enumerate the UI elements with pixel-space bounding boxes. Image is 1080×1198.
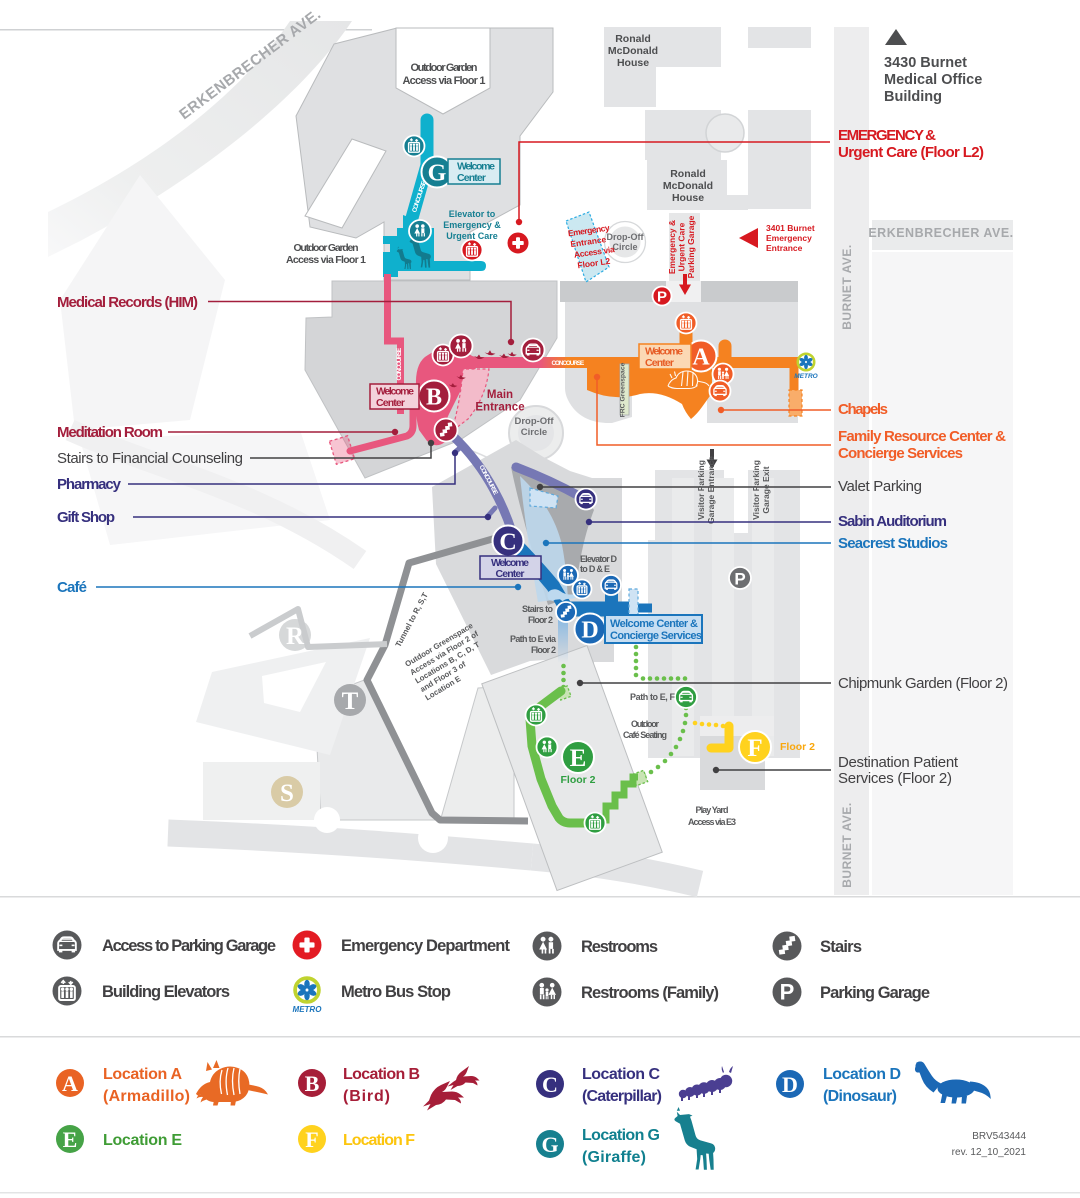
svg-text:Urgent Care (Floor L2): Urgent Care (Floor L2) [838,144,984,161]
svg-text:Stairs to Financial Counseling: Stairs to Financial Counseling [57,450,243,467]
svg-text:Emergency &: Emergency & [443,220,501,230]
svg-text:Café Seating: Café Seating [623,730,667,740]
svg-text:McDonald: McDonald [663,180,713,192]
svg-text:D: D [782,1072,798,1097]
svg-text:Location G: Location G [582,1127,660,1144]
svg-text:Restrooms: Restrooms [581,938,658,956]
svg-text:Destination Patient: Destination Patient [838,754,959,771]
svg-text:Location F: Location F [343,1132,415,1149]
svg-text:BRV543444: BRV543444 [972,1131,1026,1142]
svg-text:Concierge Services: Concierge Services [838,445,963,462]
svg-text:Location C: Location C [582,1066,660,1083]
svg-text:Circle: Circle [612,242,637,252]
svg-text:Floor 2: Floor 2 [780,741,815,753]
svg-text:Restrooms (Family): Restrooms (Family) [581,984,719,1002]
svg-text:Entrance: Entrance [766,243,803,253]
svg-text:Stairs to: Stairs to [522,604,554,614]
svg-text:BURNET AVE.: BURNET AVE. [840,802,854,888]
svg-text:Metro Bus Stop: Metro Bus Stop [341,983,451,1001]
svg-text:BURNET AVE.: BURNET AVE. [840,244,854,330]
svg-text:Access via E3: Access via E3 [688,817,736,827]
svg-text:Emergency: Emergency [766,233,812,243]
svg-text:Center: Center [457,172,486,184]
svg-text:Ronald: Ronald [615,33,651,45]
svg-text:Family Resource Center &: Family Resource Center & [838,428,1006,445]
svg-text:Visitor Parking: Visitor Parking [751,460,761,520]
svg-text:CONCOURSE: CONCOURSE [396,348,403,381]
svg-text:E: E [570,745,587,772]
svg-text:Building Elevators: Building Elevators [102,983,230,1001]
svg-text:D: D [581,618,598,644]
svg-text:Location B: Location B [343,1066,420,1083]
svg-text:F: F [747,735,762,762]
svg-text:Main: Main [487,389,513,401]
svg-text:A: A [62,1071,78,1096]
svg-text:Pharmacy: Pharmacy [57,476,122,493]
svg-text:Café: Café [57,579,87,596]
svg-text:Welcome Center &: Welcome Center & [610,618,698,630]
svg-text:Chipmunk Garden (Floor 2): Chipmunk Garden (Floor 2) [838,675,1008,692]
svg-text:Play Yard: Play Yard [696,805,729,815]
svg-text:Entrance: Entrance [475,402,524,414]
svg-text:Circle: Circle [521,427,547,438]
svg-text:Valet Parking: Valet Parking [838,478,922,495]
svg-text:to D & E: to D & E [580,564,610,574]
svg-text:(Dinosaur): (Dinosaur) [823,1088,897,1105]
svg-text:FRC Greenspace: FRC Greenspace [620,362,627,417]
svg-text:Garage Entrance: Garage Entrance [706,456,716,524]
svg-text:Outdoor Garden: Outdoor Garden [294,242,359,254]
svg-text:Access via Floor 1: Access via Floor 1 [403,75,486,87]
svg-text:Emergency &: Emergency & [667,220,677,274]
svg-text:C: C [542,1072,558,1097]
svg-text:(Giraffe): (Giraffe) [582,1149,646,1166]
svg-text:S: S [280,780,294,807]
svg-text:Elevator to: Elevator to [449,209,496,219]
svg-text:G: G [541,1132,558,1157]
svg-text:Path to E, F: Path to E, F [630,692,676,702]
svg-text:E: E [63,1127,78,1152]
svg-text:House: House [617,57,649,69]
svg-text:B: B [305,1071,320,1096]
svg-text:Stairs: Stairs [820,938,862,956]
svg-text:Chapels: Chapels [838,401,888,418]
svg-text:Floor 2: Floor 2 [560,774,595,786]
svg-text:METRO: METRO [794,373,817,380]
svg-text:Drop-Off: Drop-Off [514,416,554,427]
svg-text:G: G [428,161,447,187]
svg-text:Location A: Location A [103,1066,182,1083]
svg-text:Visitor Parking: Visitor Parking [696,460,706,520]
svg-text:Building: Building [884,89,942,105]
svg-text:Location D: Location D [823,1066,901,1083]
svg-text:(Bird): (Bird) [343,1088,390,1105]
svg-text:Location E: Location E [103,1132,182,1149]
svg-text:Medical Office: Medical Office [884,72,982,88]
svg-text:Urgent Care: Urgent Care [446,231,498,241]
svg-text:Floor 2: Floor 2 [531,645,556,655]
svg-text:F: F [305,1127,318,1152]
svg-text:Urgent Care: Urgent Care [677,222,687,271]
svg-text:Gift Shop: Gift Shop [57,509,115,526]
svg-text:Concierge Services: Concierge Services [610,630,702,642]
svg-text:Ronald: Ronald [670,168,706,180]
svg-text:Medical Records (HIM): Medical Records (HIM) [57,294,198,311]
svg-text:Center: Center [496,568,525,580]
svg-text:Services (Floor 2): Services (Floor 2) [838,770,952,787]
svg-text:Parking Garage: Parking Garage [686,215,696,278]
svg-text:CONCOURSE: CONCOURSE [552,360,585,367]
svg-text:House: House [672,192,704,204]
svg-text:P: P [780,980,795,1005]
svg-text:Welcome: Welcome [645,346,683,358]
svg-text:Path to E via: Path to E via [510,634,557,644]
svg-text:(Armadillo): (Armadillo) [103,1088,190,1105]
svg-text:Emergency Department: Emergency Department [341,937,511,955]
svg-text:Welcome: Welcome [457,161,495,173]
svg-text:C: C [499,530,516,556]
svg-text:P: P [734,570,745,589]
svg-text:EMERGENCY &: EMERGENCY & [838,127,936,144]
svg-text:Floor 2: Floor 2 [528,615,553,625]
svg-text:METRO: METRO [293,1005,323,1014]
svg-text:Outdoor: Outdoor [631,719,659,729]
svg-text:Parking Garage: Parking Garage [820,984,930,1002]
svg-text:B: B [426,385,442,411]
svg-text:Access via Floor 1: Access via Floor 1 [286,254,366,266]
svg-text:rev. 12_10_2021: rev. 12_10_2021 [952,1147,1027,1158]
svg-text:Drop-Off: Drop-Off [607,232,645,242]
svg-text:Center: Center [645,357,674,369]
svg-text:Elevator D: Elevator D [580,554,618,564]
svg-text:ERKENBRECHER AVE.: ERKENBRECHER AVE. [868,226,1013,240]
svg-text:Sabin Auditorium: Sabin Auditorium [838,513,947,530]
svg-text:(Caterpillar): (Caterpillar) [582,1088,662,1105]
svg-text:Garage Exit: Garage Exit [761,466,771,513]
svg-text:Access to Parking Garage: Access to Parking Garage [102,937,276,955]
svg-text:Outdoor Garden: Outdoor Garden [411,62,478,74]
svg-text:3401 Burnet: 3401 Burnet [766,223,815,233]
svg-text:Meditation Room: Meditation Room [57,424,163,441]
svg-text:R: R [286,623,305,650]
svg-text:McDonald: McDonald [608,45,658,57]
svg-text:P: P [657,289,667,306]
svg-text:Center: Center [376,397,405,409]
svg-text:Seacrest Studios: Seacrest Studios [838,535,948,552]
svg-text:3430 Burnet: 3430 Burnet [884,55,967,71]
svg-text:Welcome: Welcome [376,386,414,398]
svg-text:A: A [692,345,710,371]
svg-text:T: T [342,688,359,715]
